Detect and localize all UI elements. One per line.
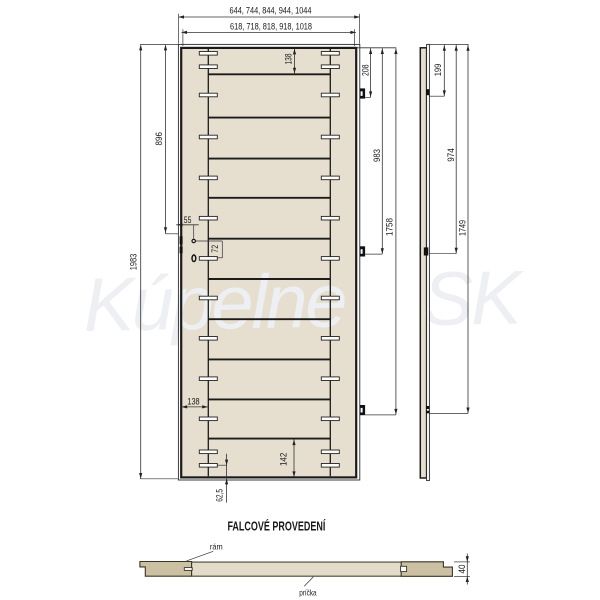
svg-text:55: 55 xyxy=(184,215,192,225)
svg-text:138: 138 xyxy=(284,54,294,65)
svg-text:40: 40 xyxy=(457,565,467,574)
svg-text:Kúpelne: Kúpelne xyxy=(83,258,346,348)
svg-text:príčka: príčka xyxy=(299,589,317,598)
svg-text:62,5: 62,5 xyxy=(215,489,225,502)
svg-text:72: 72 xyxy=(210,245,220,253)
svg-text:SK: SK xyxy=(422,255,526,342)
svg-text:1758: 1758 xyxy=(385,218,395,236)
svg-text:142: 142 xyxy=(279,453,289,466)
svg-text:rám: rám xyxy=(210,543,223,552)
svg-text:138: 138 xyxy=(187,396,199,406)
svg-text:199: 199 xyxy=(433,64,443,77)
svg-text:FALCOVÉ PROVEDENÍ: FALCOVÉ PROVEDENÍ xyxy=(227,518,325,533)
svg-text:644, 744, 844, 944, 1044: 644, 744, 844, 944, 1044 xyxy=(230,5,312,15)
svg-text:983: 983 xyxy=(372,149,382,162)
svg-text:618, 718, 818, 918, 1018: 618, 718, 818, 918, 1018 xyxy=(230,22,312,32)
svg-text:974: 974 xyxy=(446,148,456,162)
svg-text:1983: 1983 xyxy=(128,254,138,271)
svg-text:896: 896 xyxy=(154,132,164,146)
svg-text:208: 208 xyxy=(360,64,370,76)
svg-text:1749: 1749 xyxy=(457,220,467,236)
